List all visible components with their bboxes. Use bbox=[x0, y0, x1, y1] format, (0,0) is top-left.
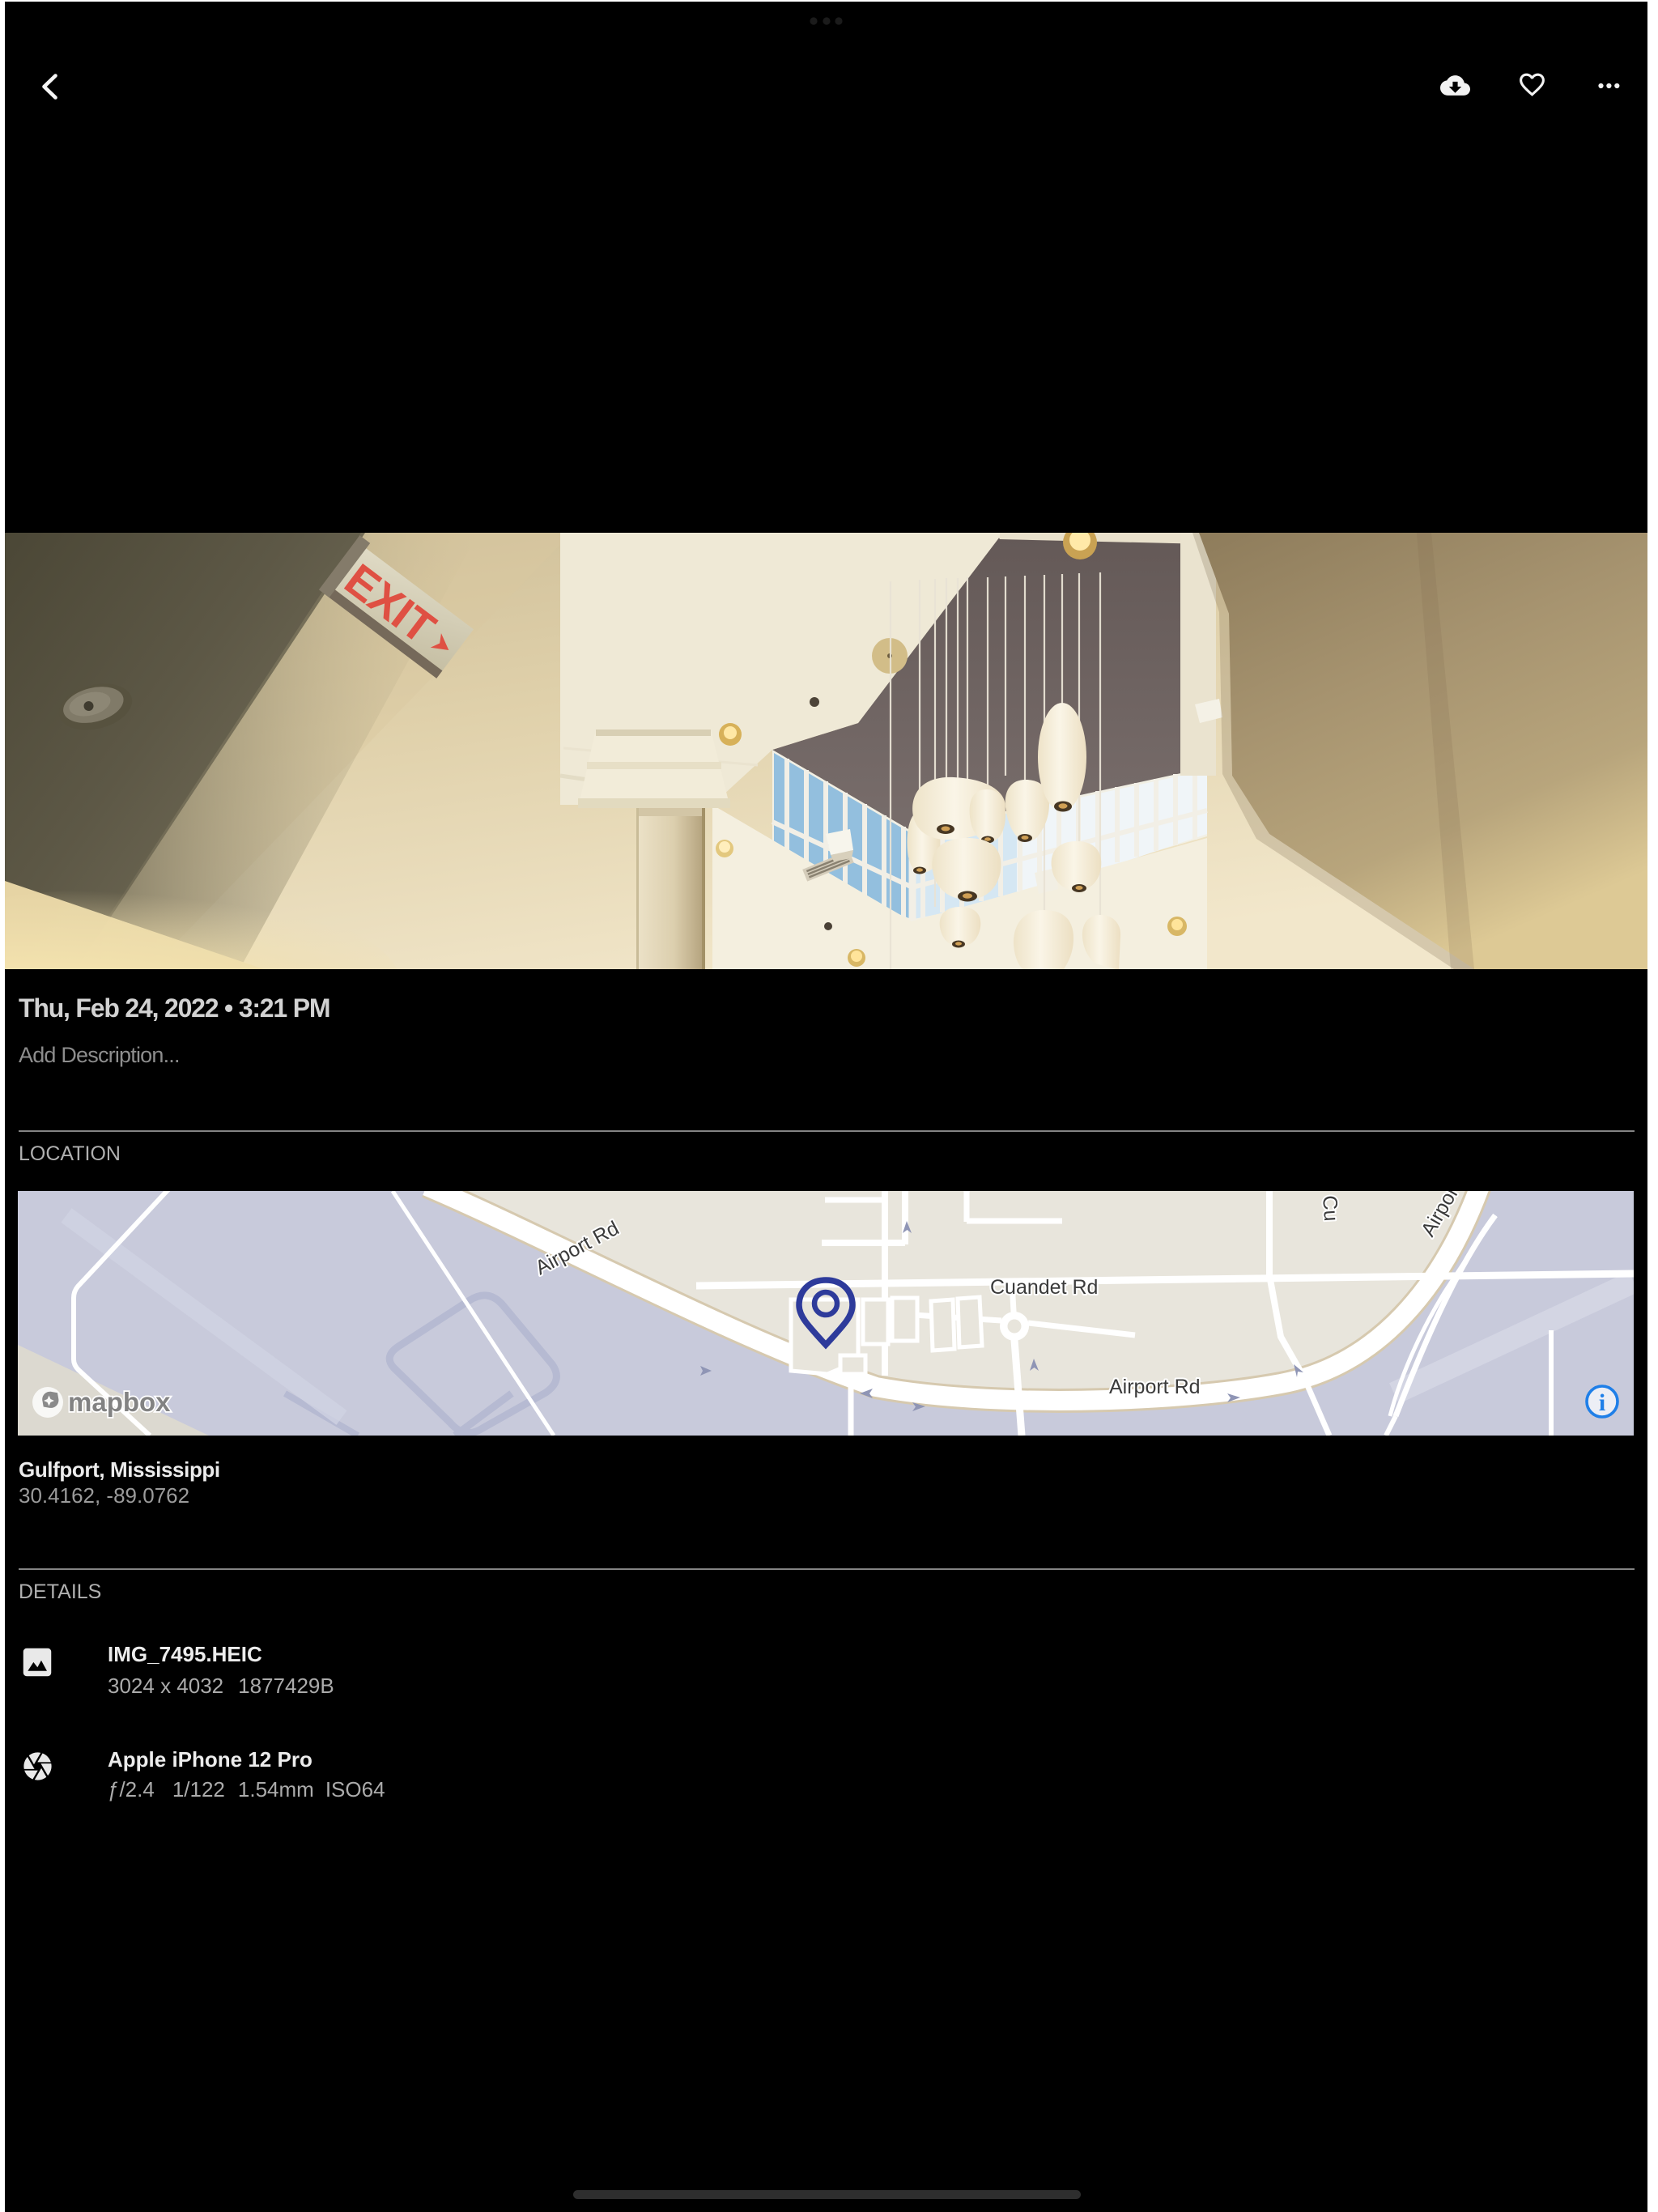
svg-text:Cuandet Rd: Cuandet Rd bbox=[990, 1276, 1098, 1299]
svg-text:Airport Rd: Airport Rd bbox=[1109, 1376, 1201, 1398]
svg-text:mapbox: mapbox bbox=[68, 1387, 171, 1417]
svg-text:Cu: Cu bbox=[1318, 1194, 1342, 1222]
svg-text:i: i bbox=[1599, 1389, 1605, 1416]
